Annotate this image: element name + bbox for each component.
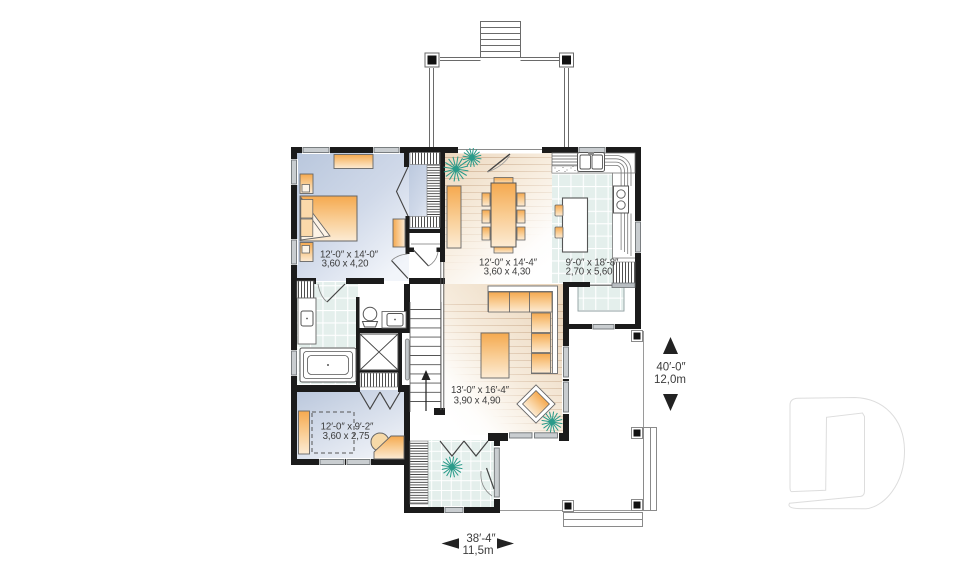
svg-text:38′-4″: 38′-4″ bbox=[466, 533, 495, 545]
svg-text:11,5m: 11,5m bbox=[462, 545, 493, 557]
svg-text:3,60 x 4,20: 3,60 x 4,20 bbox=[322, 259, 370, 270]
svg-text:12,0m: 12,0m bbox=[654, 374, 686, 386]
svg-text:2,70 x 5,60: 2,70 x 5,60 bbox=[566, 267, 614, 278]
svg-text:3,60 x 4,30: 3,60 x 4,30 bbox=[484, 267, 532, 278]
svg-text:3,60 x 2,75: 3,60 x 2,75 bbox=[323, 431, 370, 442]
svg-text:13′-0″ x 16′-4″: 13′-0″ x 16′-4″ bbox=[451, 385, 510, 396]
svg-text:40′-0″: 40′-0″ bbox=[656, 362, 685, 374]
svg-text:3,90 x 4,90: 3,90 x 4,90 bbox=[454, 396, 502, 407]
